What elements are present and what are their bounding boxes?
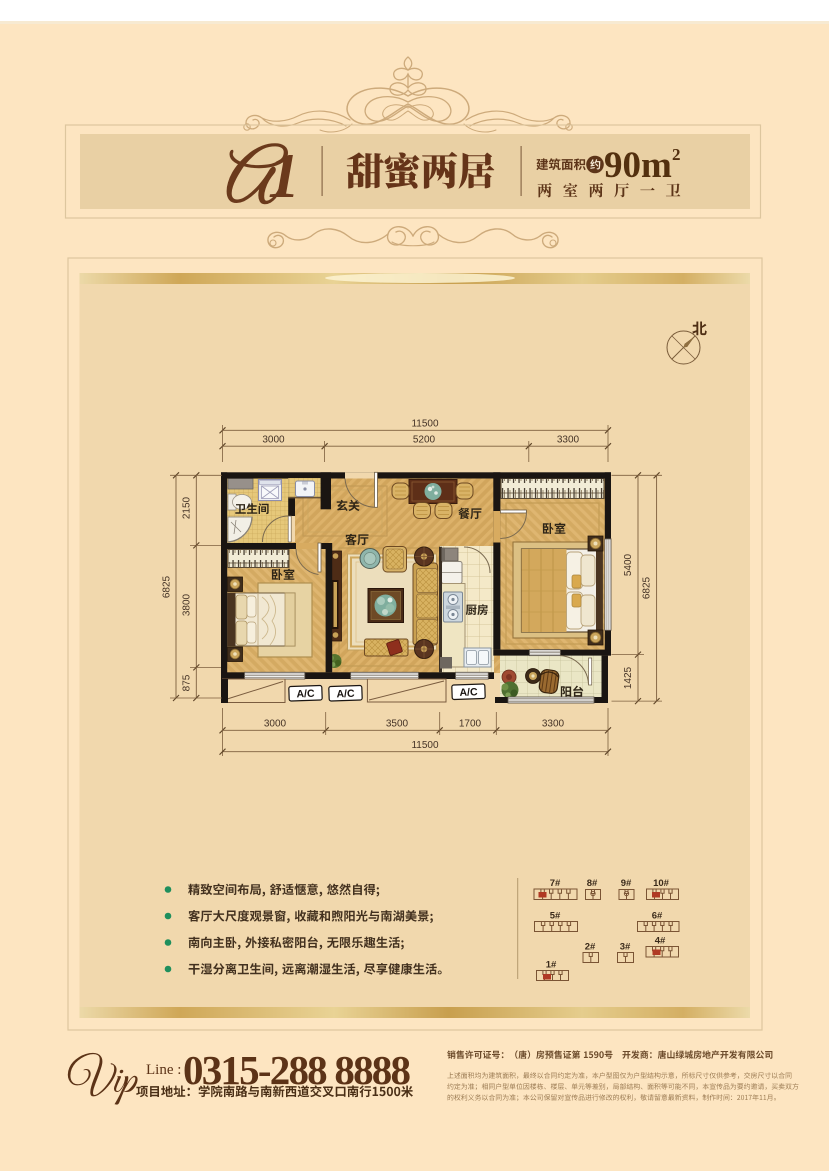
svg-text:875: 875 xyxy=(182,674,193,691)
svg-text:2150: 2150 xyxy=(182,496,193,519)
svg-text:A/C: A/C xyxy=(459,686,478,699)
svg-text:3800: 3800 xyxy=(182,593,193,616)
svg-text:9#: 9# xyxy=(621,878,632,889)
svg-text:10#: 10# xyxy=(653,878,670,889)
svg-text:5200: 5200 xyxy=(413,435,436,446)
svg-text:90m: 90m xyxy=(604,145,672,186)
svg-text:3500: 3500 xyxy=(386,719,409,730)
svg-text:3#: 3# xyxy=(620,942,631,953)
svg-text:6825: 6825 xyxy=(162,575,173,598)
svg-text:11500: 11500 xyxy=(411,740,439,751)
svg-text:6825: 6825 xyxy=(642,576,653,599)
svg-text:1425: 1425 xyxy=(623,666,634,689)
svg-text:0315-288 8888: 0315-288 8888 xyxy=(183,1047,411,1093)
svg-text:3000: 3000 xyxy=(262,435,285,446)
svg-text:7#: 7# xyxy=(550,878,561,889)
svg-text:1700: 1700 xyxy=(459,719,482,730)
svg-text:Line :: Line : xyxy=(146,1062,181,1078)
svg-text:2#: 2# xyxy=(585,942,596,953)
svg-text:A/C: A/C xyxy=(296,688,315,701)
svg-text:5400: 5400 xyxy=(623,553,634,576)
svg-text:3000: 3000 xyxy=(264,719,287,730)
svg-text:1#: 1# xyxy=(546,960,557,971)
svg-text:1: 1 xyxy=(268,140,300,211)
svg-text:11500: 11500 xyxy=(411,419,439,430)
svg-text:6#: 6# xyxy=(652,911,663,922)
svg-text:4#: 4# xyxy=(655,936,666,947)
svg-text:A/C: A/C xyxy=(336,688,355,701)
svg-text:2: 2 xyxy=(672,145,681,164)
svg-text:5#: 5# xyxy=(550,911,561,922)
svg-text:8#: 8# xyxy=(587,878,598,889)
svg-text:3300: 3300 xyxy=(557,435,580,446)
svg-text:3300: 3300 xyxy=(542,719,565,730)
